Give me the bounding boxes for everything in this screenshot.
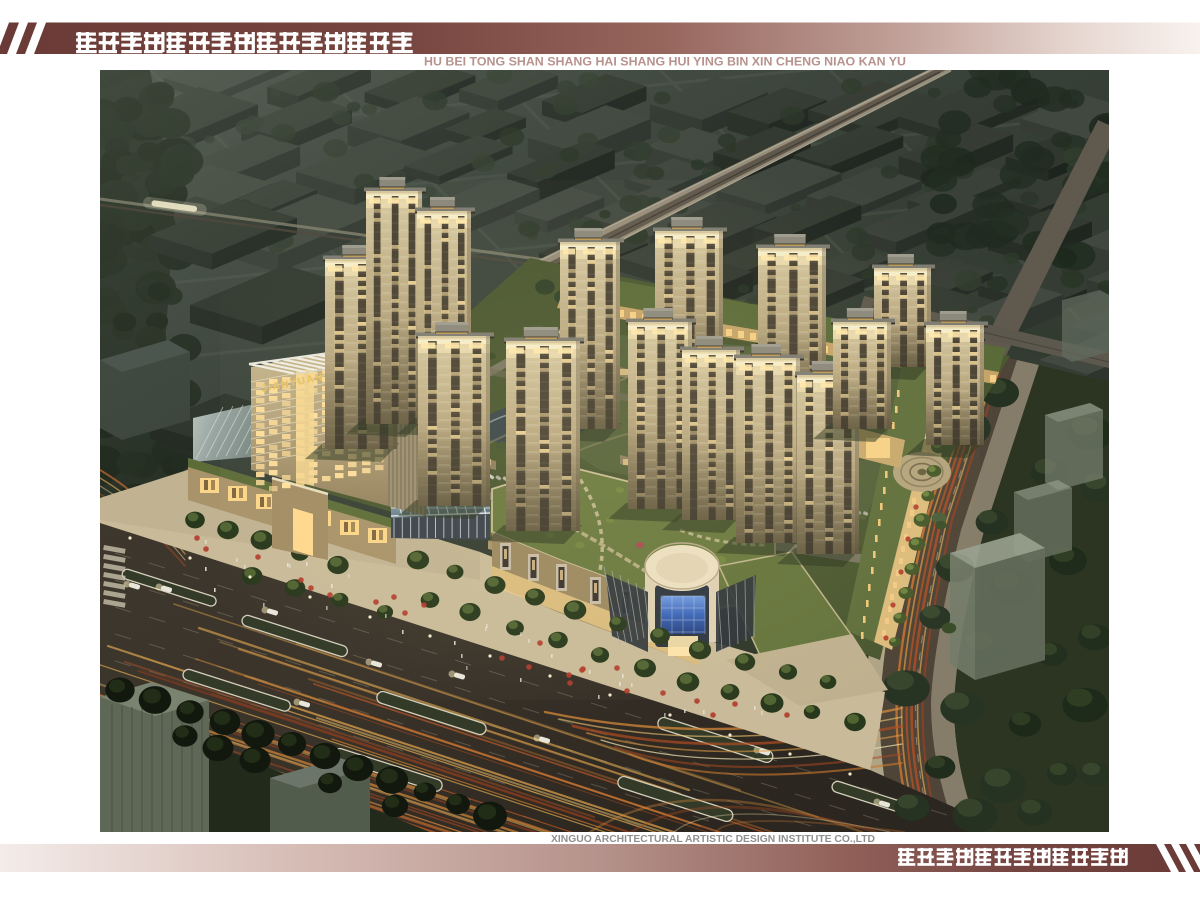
svg-text:XINGUO ARCHITECTURAL ARTISTIC: XINGUO ARCHITECTURAL ARTISTIC DESIGN INS… — [551, 833, 875, 845]
svg-text:HU BEI TONG SHAN SHANG HAI SHA: HU BEI TONG SHAN SHANG HAI SHANG HUI YIN… — [424, 55, 906, 69]
